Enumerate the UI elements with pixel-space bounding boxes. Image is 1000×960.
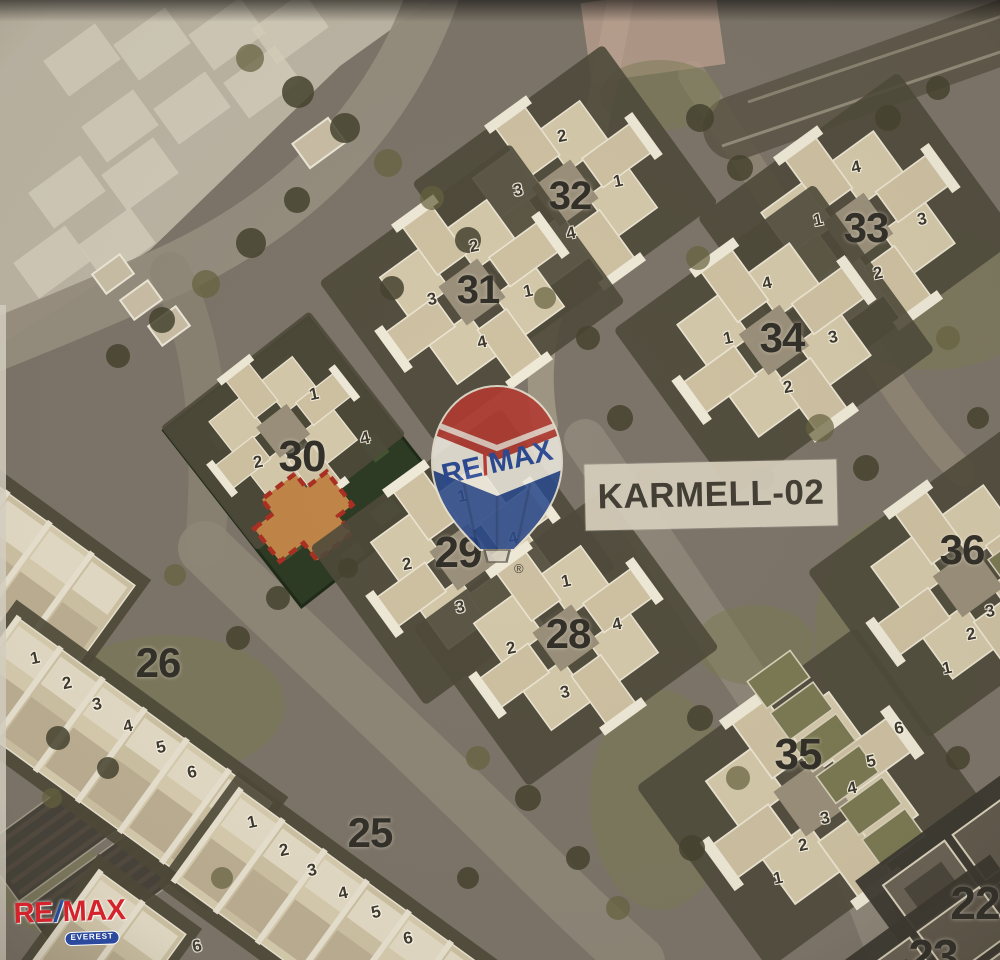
unit-number-label: 1 — [812, 211, 825, 230]
unit-number-label: 3 — [916, 210, 929, 229]
site-plan-photo: 3221343121343341323441323014229142328142… — [0, 0, 1000, 960]
unit-number-label: 3 — [426, 290, 439, 309]
unit-number-label: 4 — [337, 884, 350, 903]
unit-number-label: 4 — [359, 429, 372, 448]
unit-number-label: 2 — [278, 841, 291, 860]
unit-number-label: 3 — [827, 328, 840, 347]
unit-number-label: 5 — [155, 738, 168, 757]
building-number-label: 22 — [950, 880, 999, 926]
unit-number-label: 4 — [761, 274, 774, 293]
registered-mark-icon: ® — [514, 561, 524, 576]
project-label: KARMELL-02 — [584, 459, 837, 530]
unit-number-label: 2 — [872, 264, 885, 283]
unit-number-label: 2 — [782, 378, 795, 397]
unit-number-label: 2 — [556, 127, 569, 146]
unit-number-label: 5 — [865, 752, 878, 771]
remax-wordmark: RE/MAX — [13, 896, 126, 929]
unit-number-label: 1 — [941, 659, 954, 678]
everest-badge: EVEREST — [64, 930, 119, 946]
unit-number-label: 4 — [611, 615, 624, 634]
unit-number-label: 1 — [722, 329, 735, 348]
building-number-label: 33 — [844, 207, 889, 249]
unit-number-label: 3 — [819, 809, 832, 828]
building-number-label: 36 — [940, 529, 985, 571]
building-number-label: 35 — [775, 733, 822, 777]
unit-number-label: 1 — [308, 385, 321, 404]
building-number-label: 31 — [457, 270, 500, 310]
unit-number-label: 3 — [306, 861, 319, 880]
building-number-label: 23 — [908, 933, 957, 960]
unit-number-label: 6 — [191, 937, 204, 956]
unit-number-label: 2 — [61, 674, 74, 693]
unit-number-label: 1 — [772, 869, 785, 888]
unit-number-label: 3 — [984, 602, 997, 621]
unit-number-label: 4 — [565, 224, 578, 243]
building-number-label: 26 — [136, 642, 181, 684]
unit-number-label: 2 — [252, 453, 265, 472]
building-number-label: 34 — [760, 317, 805, 359]
unit-number-label: 3 — [559, 683, 572, 702]
unit-number-label: 3 — [512, 181, 525, 200]
unit-number-label: 6 — [402, 929, 415, 948]
unit-number-label: 1 — [29, 649, 42, 668]
remax-everest-logo: RE/MAX EVEREST — [13, 896, 126, 948]
unit-number-label: 2 — [797, 836, 810, 855]
unit-number-label: 1 — [246, 813, 259, 832]
unit-number-label: 4 — [846, 779, 859, 798]
unit-number-label: 6 — [893, 719, 906, 738]
unit-number-label: 5 — [370, 903, 383, 922]
unit-number-label: 1 — [522, 282, 535, 301]
building-number-label: 30 — [279, 435, 326, 479]
unit-number-label: 4 — [122, 717, 135, 736]
building-number-label: 32 — [549, 176, 592, 216]
unit-number-label: 2 — [401, 555, 414, 574]
unit-number-label: 2 — [468, 237, 481, 256]
unit-number-label: 2 — [505, 639, 518, 658]
project-label-text: KARMELL-02 — [597, 473, 824, 518]
unit-number-label: 4 — [476, 333, 489, 352]
building-number-label: 25 — [348, 812, 393, 854]
unit-number-label: 2 — [965, 625, 978, 644]
unit-number-label: 1 — [612, 172, 625, 191]
building-number-label: 28 — [546, 613, 591, 655]
remax-balloon-logo: RE/MAX ® — [421, 384, 573, 584]
unit-number-label: 3 — [91, 695, 104, 714]
unit-number-label: 3 — [454, 598, 467, 617]
unit-number-label: 6 — [186, 763, 199, 782]
unit-number-label: 4 — [850, 158, 863, 177]
